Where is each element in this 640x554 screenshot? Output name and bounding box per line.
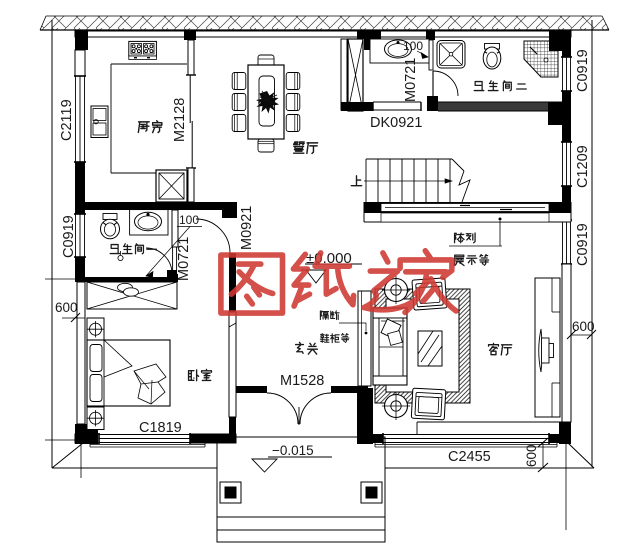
svg-text:M2128: M2128: [172, 98, 188, 142]
svg-text:C0919: C0919: [575, 223, 591, 266]
svg-text:C1819: C1819: [139, 420, 182, 436]
svg-text:C0919: C0919: [61, 215, 77, 258]
svg-text:DK0921: DK0921: [370, 115, 422, 131]
svg-text:M0721: M0721: [403, 58, 419, 102]
svg-text:C0919: C0919: [575, 49, 591, 92]
svg-text:100: 100: [179, 213, 199, 227]
svg-text:M0921: M0921: [239, 206, 255, 250]
svg-text:600: 600: [55, 300, 78, 315]
svg-text:M1528: M1528: [280, 373, 324, 389]
svg-text:100: 100: [403, 39, 423, 53]
svg-text:600: 600: [572, 319, 595, 334]
svg-text:C2455: C2455: [448, 449, 491, 465]
svg-text:600: 600: [524, 444, 539, 467]
svg-text:C2119: C2119: [59, 99, 75, 141]
svg-text:M0721: M0721: [176, 237, 192, 281]
svg-text:C1209: C1209: [575, 145, 591, 188]
svg-text:−0.015: −0.015: [272, 443, 314, 458]
